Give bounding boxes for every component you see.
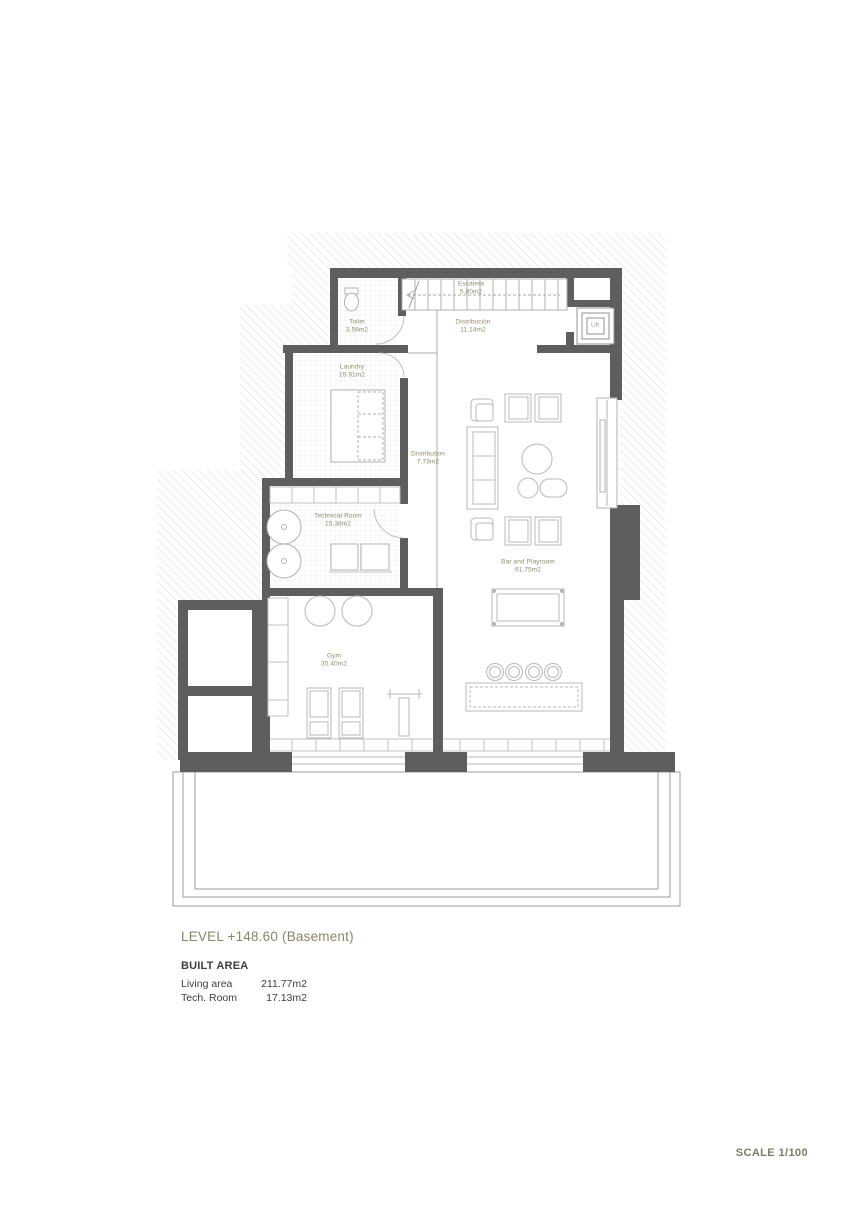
light-wells: [188, 610, 252, 752]
room-label-gym: Gym 35.40m2: [321, 653, 347, 670]
room-label-toilet: Toilet 3.56m2: [346, 319, 368, 336]
staircase: [402, 279, 567, 310]
room-label-bar-playroom: Bar and Playroom 91.75m2: [501, 559, 555, 576]
lounge-furniture: [467, 394, 567, 545]
area-row-living: Living area 211.77m2: [181, 977, 307, 991]
built-area-heading: BUILT AREA: [181, 960, 361, 972]
wc-fixture: [345, 288, 359, 311]
right-wall-window: [597, 398, 617, 508]
room-label-technical-room: Technical Room 15.38m2: [314, 513, 362, 530]
title-block: LEVEL +148.60 (Basement) BUILT AREA Livi…: [181, 929, 361, 1005]
laundry-island: [331, 390, 385, 462]
room-label-laundry: Laundry 15.91m2: [339, 364, 365, 381]
corridor-edges: [408, 310, 437, 588]
room-label-distribution: Distribution 7.73m2: [411, 451, 445, 468]
area-row-tech: Tech. Room 17.13m2: [181, 991, 307, 1005]
drawing-sheet: Escalera 5.80m2 Distribución 11.14m2 Toi…: [0, 0, 852, 1205]
area-value: 17.13m2: [266, 991, 307, 1005]
area-label: Tech. Room: [181, 991, 237, 1005]
terrace-steps: [173, 772, 680, 906]
area-label: Living area: [181, 977, 232, 991]
bar-furniture: [466, 589, 582, 711]
room-label-lift: Lift: [591, 322, 599, 329]
room-label-distribucion: Distribución 11.14m2: [455, 319, 490, 336]
level-title: LEVEL +148.60 (Basement): [181, 929, 361, 944]
area-value: 211.77m2: [261, 977, 307, 991]
room-label-escalera: Escalera 5.80m2: [458, 281, 484, 298]
scale-note: SCALE 1/100: [736, 1147, 808, 1159]
floor-plan-drawing: [0, 0, 852, 1205]
